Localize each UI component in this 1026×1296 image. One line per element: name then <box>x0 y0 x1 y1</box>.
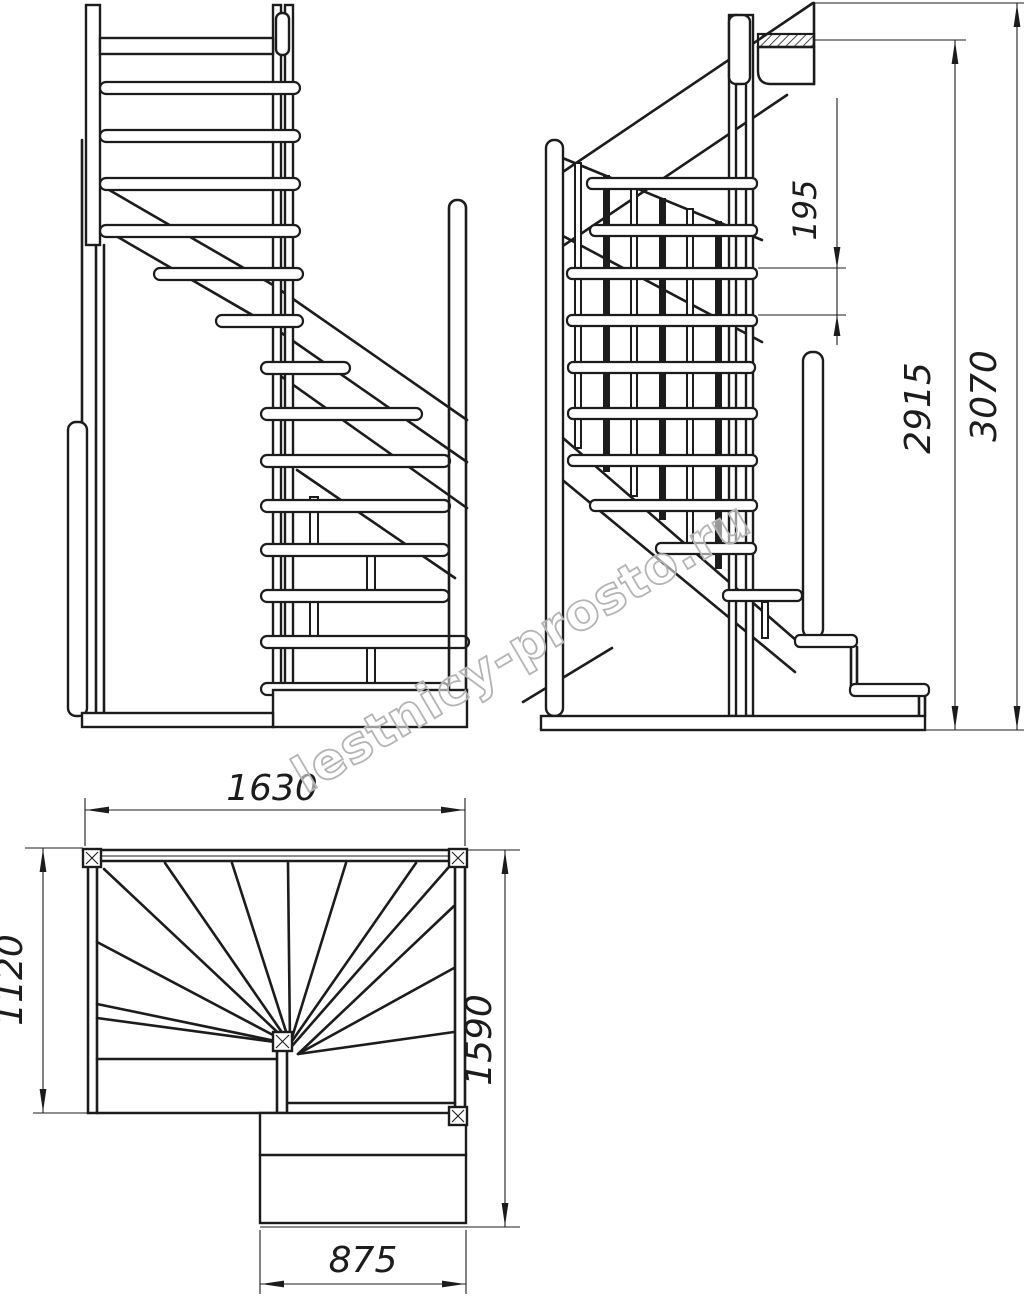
step-tread <box>850 684 929 696</box>
dimension-riser-195: 195 <box>758 98 846 345</box>
tread <box>261 408 422 420</box>
tread <box>261 590 449 602</box>
blueprint-page: 195 2915 3070 <box>0 0 1026 1296</box>
front-left-post <box>68 5 104 716</box>
side-floor-strip <box>541 716 925 730</box>
plan-winder-fan <box>97 863 454 1054</box>
floor-slab-hatched <box>758 34 814 47</box>
tread <box>568 455 757 466</box>
dim-label-right-depth: 1590 <box>459 994 500 1086</box>
tread <box>261 636 469 648</box>
step-tread <box>795 635 857 647</box>
front-central-column <box>273 5 293 690</box>
tread <box>261 455 450 467</box>
dim-label-lower-flight-width: 875 <box>329 1240 398 1281</box>
side-view-dimensions: 195 2915 3070 <box>758 3 1024 730</box>
plan-walls <box>83 850 467 1113</box>
dim-label-total-height: 3070 <box>964 350 1005 442</box>
tread <box>261 362 350 374</box>
tread <box>100 82 300 94</box>
dimension-1630: 1630 <box>85 768 465 846</box>
dim-label-landing-height: 2915 <box>898 362 939 454</box>
landing-newel-cap <box>729 15 750 84</box>
tread <box>100 130 300 142</box>
tread <box>587 178 757 189</box>
plan-center-post <box>273 1032 292 1051</box>
tread <box>568 362 755 373</box>
tread <box>261 544 449 556</box>
tread <box>154 268 303 280</box>
plan-tread-edges <box>88 1051 455 1113</box>
side-top-landing <box>729 3 814 84</box>
tread <box>100 225 300 237</box>
tread <box>100 178 300 190</box>
side-lower-steps <box>795 635 929 716</box>
staircase-technical-drawing: 195 2915 3070 <box>0 0 1026 1296</box>
tread <box>567 315 757 326</box>
tread <box>567 268 757 279</box>
front-elevation-view <box>68 5 469 727</box>
tread <box>261 500 450 512</box>
tread <box>216 315 303 327</box>
dim-label-left-depth: 1120 <box>0 934 31 1026</box>
front-floor-strip <box>82 713 273 727</box>
tread <box>590 225 757 236</box>
tread <box>723 590 802 601</box>
dim-label-riser: 195 <box>786 179 824 240</box>
front-handrail <box>100 38 273 54</box>
dimension-875: 875 <box>260 1230 466 1294</box>
plan-lower-flight <box>260 1113 466 1223</box>
tread <box>568 408 757 419</box>
plan-view <box>83 849 467 1223</box>
landing-body <box>758 47 814 84</box>
side-newel-post <box>803 352 823 638</box>
dimension-1120: 1120 <box>0 848 88 1113</box>
plan-corner-posts <box>83 849 467 1125</box>
